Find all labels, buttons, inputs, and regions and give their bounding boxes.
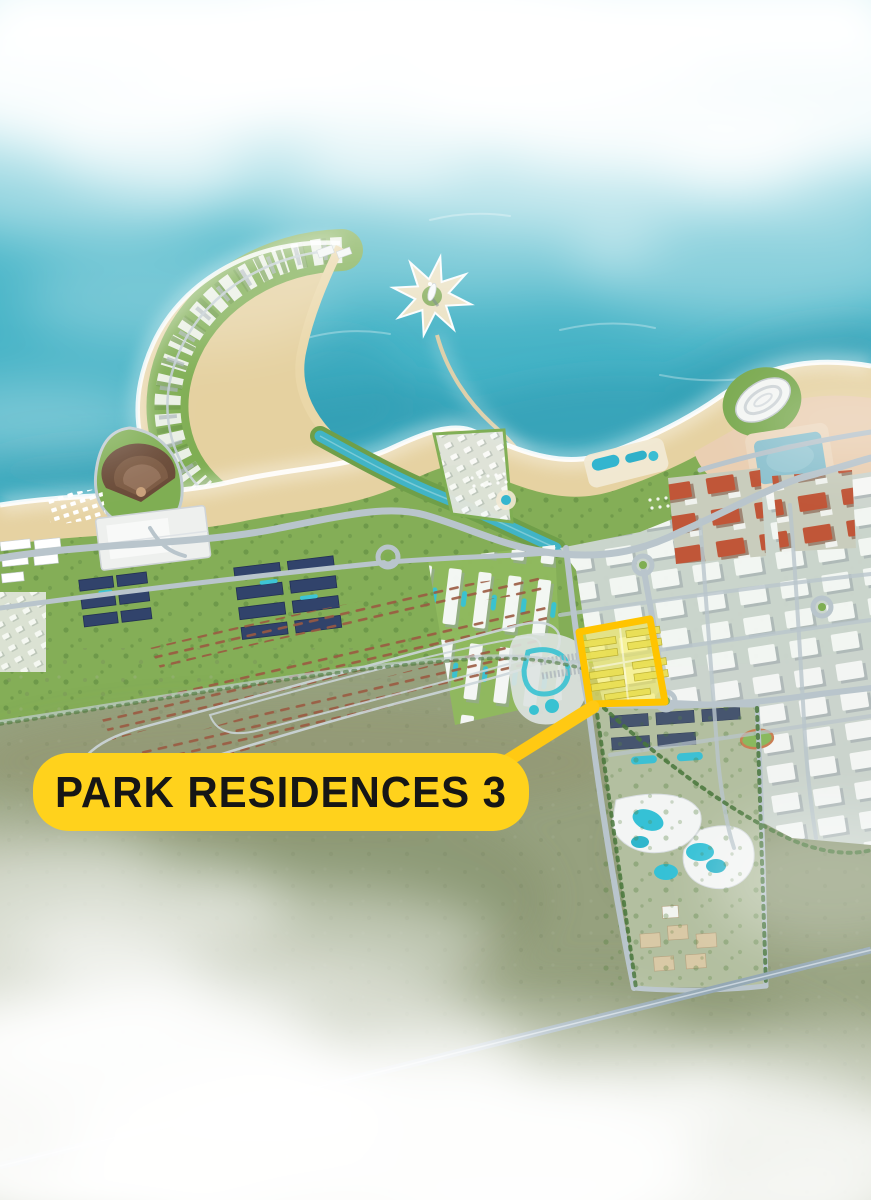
masterplan-map: PARK RESIDENCES 3 xyxy=(0,0,871,1200)
callout-label: PARK RESIDENCES 3 xyxy=(55,768,507,817)
resort-pools-small xyxy=(496,490,516,510)
park-residences-3-plot[interactable] xyxy=(579,619,671,704)
map-canvas: PARK RESIDENCES 3 xyxy=(0,0,871,1200)
